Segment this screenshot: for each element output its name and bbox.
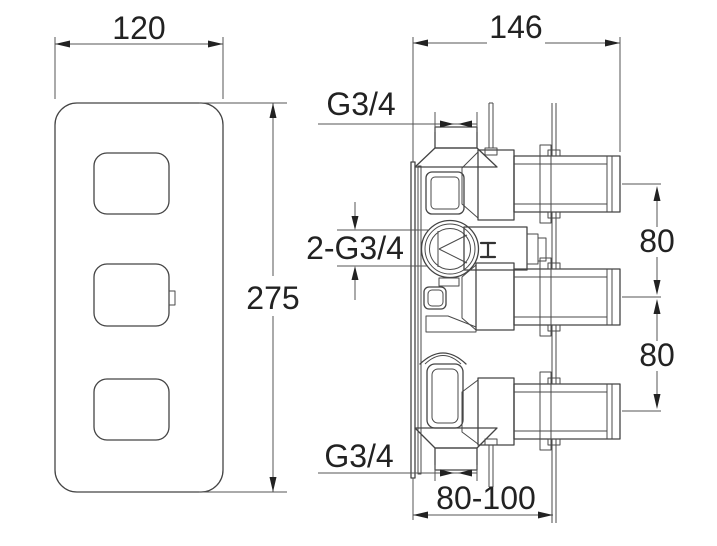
install-depth-dimension: 80-100	[413, 478, 553, 520]
arrow-right-icon	[208, 41, 223, 48]
arrow-left-icon	[55, 41, 70, 48]
knob-middle-tab	[169, 291, 175, 305]
inlet-label: 2-G3/4	[306, 230, 404, 266]
front-height-dimension: 275	[199, 103, 300, 492]
arrow-up-icon	[270, 103, 277, 118]
side-depth-dimension: 146	[413, 9, 620, 162]
wall-plate-front	[411, 162, 415, 478]
side-view	[411, 103, 620, 523]
arrow-down-icon	[270, 477, 277, 492]
top-port-callout: G3/4	[318, 86, 477, 132]
technical-drawing-page: 120 275	[0, 0, 717, 546]
bottom-pipe-nut	[478, 378, 514, 445]
port-spacing-dimensions: 80 80	[622, 184, 675, 411]
side-depth-label: 146	[489, 9, 542, 45]
bottom-port-callout: G3/4	[318, 438, 477, 481]
knob-top	[94, 153, 169, 214]
bottom-port-label: G3/4	[324, 438, 393, 474]
plaster-plate	[548, 103, 560, 523]
front-height-label: 275	[246, 280, 299, 316]
flange-top	[540, 145, 551, 223]
flange-middle	[540, 258, 551, 336]
upper-spacing-label: 80	[639, 223, 675, 259]
top-port	[435, 127, 477, 148]
top-pipe-nut	[478, 150, 514, 220]
knob-middle	[94, 264, 169, 326]
knob-bottom	[94, 379, 169, 440]
bottom-port	[435, 448, 477, 470]
front-view	[55, 103, 223, 492]
h-mark-icon	[481, 243, 495, 257]
lower-spacing-label: 80	[639, 337, 675, 373]
middle-pipe-nut	[476, 263, 514, 330]
shower-valve-drawing: 120 275	[0, 0, 717, 546]
top-port-label: G3/4	[326, 86, 395, 122]
front-width-dimension: 120	[55, 10, 223, 99]
faceplate-outline	[55, 103, 223, 492]
install-depth-label: 80-100	[436, 480, 536, 516]
inlet-valve-circle	[422, 221, 479, 278]
front-width-label: 120	[112, 10, 165, 46]
